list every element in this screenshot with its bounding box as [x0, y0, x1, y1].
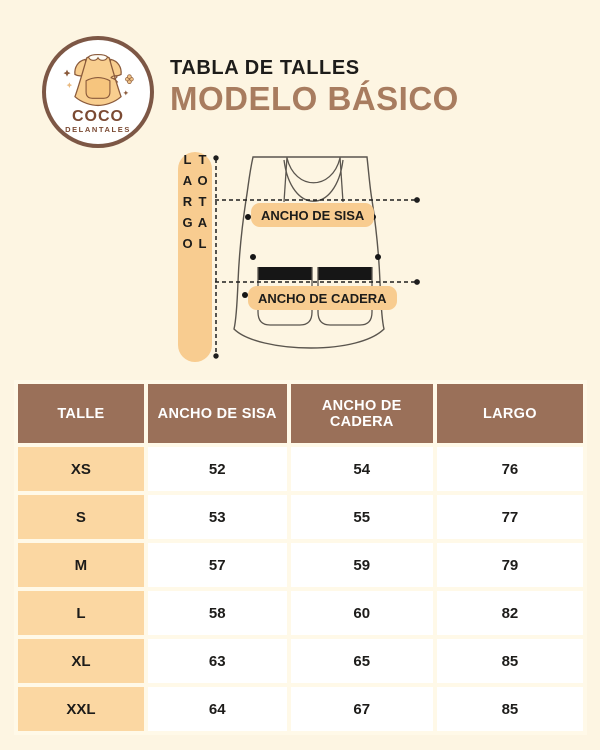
value-cell: 53 — [148, 495, 287, 539]
size-table: TALLE ANCHO DE SISA ANCHO DE CADERA LARG… — [14, 380, 587, 735]
table-row: XS 52 54 76 — [18, 447, 583, 491]
value-cell: 52 — [148, 447, 287, 491]
size-chart-page: { "brand": { "name_top": "COCO", "name_b… — [0, 0, 600, 750]
table-row: L 58 60 82 — [18, 591, 583, 635]
ancho-de-cadera-label: ANCHO DE CADERA — [248, 286, 397, 310]
value-cell: 64 — [148, 687, 287, 731]
value-cell: 54 — [291, 447, 433, 491]
header: TABLA DE TALLES MODELO BÁSICO — [170, 57, 459, 117]
table-row: S 53 55 77 — [18, 495, 583, 539]
brand-subname: DELANTALES — [65, 125, 131, 136]
apron-measurement-diagram: LARGO TOTAL ANCHO DE SISA ANCHO DE CADER… — [0, 145, 600, 385]
table-header-row: TALLE ANCHO DE SISA ANCHO DE CADERA LARG… — [18, 384, 583, 443]
value-cell: 60 — [291, 591, 433, 635]
page-title: MODELO BÁSICO — [170, 82, 459, 117]
col-header-largo: LARGO — [437, 384, 583, 443]
size-cell: S — [18, 495, 144, 539]
size-cell: XXL — [18, 687, 144, 731]
table-row: XL 63 65 85 — [18, 639, 583, 683]
col-header-cadera: ANCHO DE CADERA — [291, 384, 433, 443]
brand-logo: COCO DELANTALES — [42, 36, 154, 148]
value-cell: 57 — [148, 543, 287, 587]
value-cell: 65 — [291, 639, 433, 683]
brand-name: COCO — [72, 109, 124, 125]
value-cell: 82 — [437, 591, 583, 635]
dress-icon — [58, 49, 138, 111]
size-cell: L — [18, 591, 144, 635]
value-cell: 58 — [148, 591, 287, 635]
table-row: M 57 59 79 — [18, 543, 583, 587]
apron-outline-drawing — [0, 145, 600, 385]
value-cell: 79 — [437, 543, 583, 587]
value-cell: 67 — [291, 687, 433, 731]
size-cell: M — [18, 543, 144, 587]
value-cell: 85 — [437, 687, 583, 731]
largo-total-label: LARGO TOTAL — [178, 152, 212, 362]
value-cell: 85 — [437, 639, 583, 683]
value-cell: 77 — [437, 495, 583, 539]
value-cell: 55 — [291, 495, 433, 539]
table-row: XXL 64 67 85 — [18, 687, 583, 731]
value-cell: 76 — [437, 447, 583, 491]
col-header-talle: TALLE — [18, 384, 144, 443]
value-cell: 63 — [148, 639, 287, 683]
page-subtitle: TABLA DE TALLES — [170, 57, 459, 80]
ancho-de-sisa-label: ANCHO DE SISA — [251, 203, 374, 227]
size-cell: XS — [18, 447, 144, 491]
value-cell: 59 — [291, 543, 433, 587]
col-header-sisa: ANCHO DE SISA — [148, 384, 287, 443]
size-cell: XL — [18, 639, 144, 683]
